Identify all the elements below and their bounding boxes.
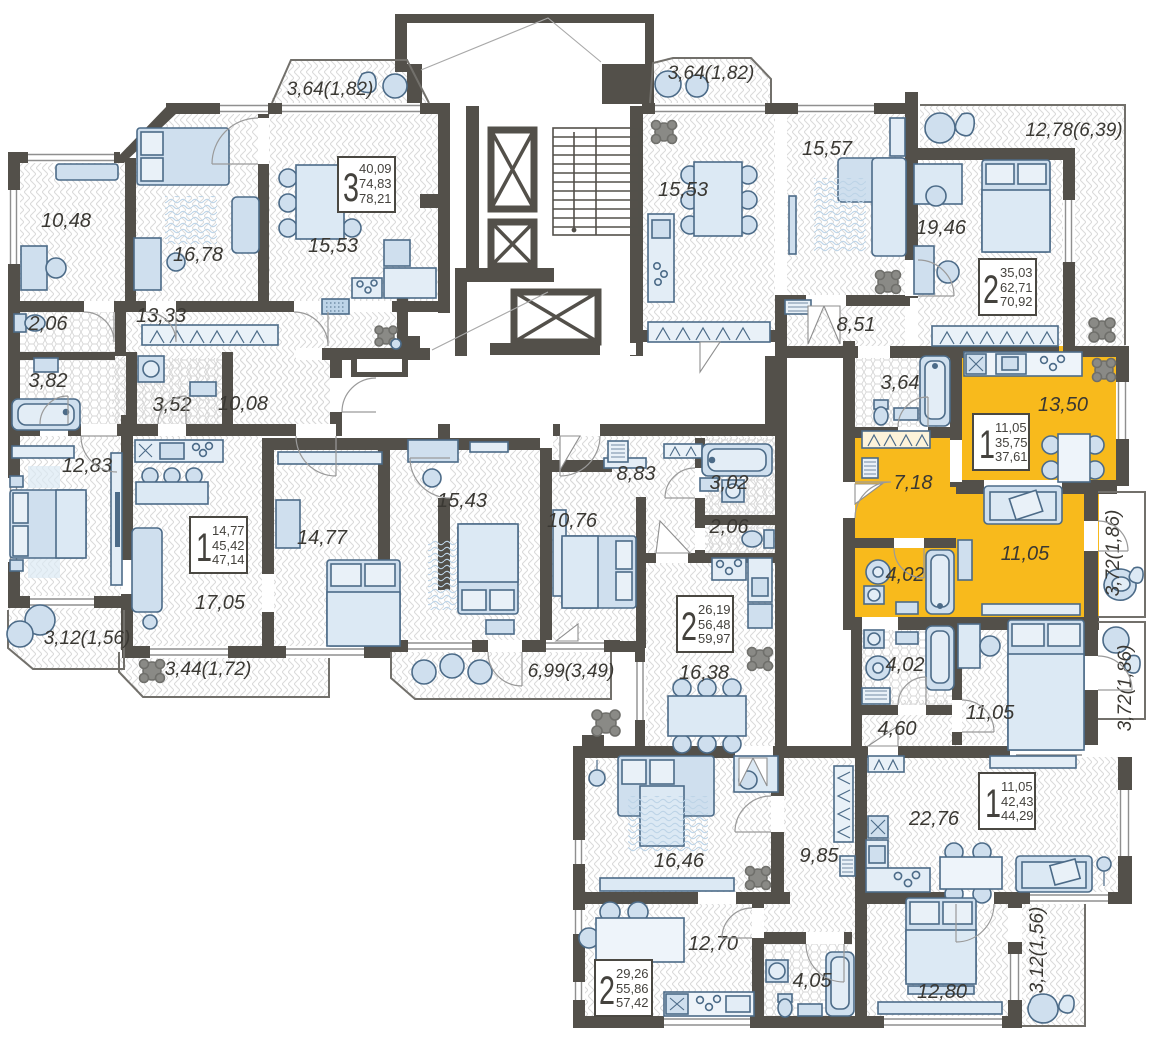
svg-text:15,53: 15,53 [658, 179, 708, 201]
svg-text:12,70: 12,70 [688, 933, 738, 955]
svg-text:11,05: 11,05 [1001, 543, 1050, 565]
svg-text:3,72(1,86): 3,72(1,86) [1103, 510, 1124, 597]
svg-text:11,05: 11,05 [995, 420, 1027, 435]
svg-text:11,05: 11,05 [1001, 779, 1033, 794]
svg-text:9,85: 9,85 [800, 845, 840, 867]
svg-text:7,18: 7,18 [894, 472, 933, 494]
svg-text:74,83: 74,83 [359, 176, 392, 191]
svg-text:15,43: 15,43 [437, 490, 487, 512]
svg-text:10,76: 10,76 [547, 510, 598, 532]
svg-text:4,02: 4,02 [886, 654, 925, 676]
svg-text:12,83: 12,83 [62, 455, 112, 477]
svg-text:2: 2 [681, 605, 697, 649]
svg-text:35,03: 35,03 [1000, 265, 1033, 280]
svg-text:3,82: 3,82 [29, 370, 68, 392]
svg-text:3,64: 3,64 [881, 372, 920, 394]
svg-text:2: 2 [983, 268, 999, 312]
svg-text:42,43: 42,43 [1001, 794, 1034, 809]
svg-text:37,61: 37,61 [995, 449, 1028, 464]
svg-text:8,51: 8,51 [837, 314, 876, 336]
svg-text:78,21: 78,21 [359, 191, 392, 206]
svg-text:3,72(1,86): 3,72(1,86) [1115, 645, 1136, 732]
svg-text:22,76: 22,76 [908, 808, 960, 830]
svg-text:10,08: 10,08 [218, 393, 268, 415]
svg-text:12,80: 12,80 [917, 981, 967, 1003]
svg-text:6,99(3,49): 6,99(3,49) [528, 661, 615, 682]
svg-text:4,05: 4,05 [793, 970, 833, 992]
svg-text:1: 1 [196, 526, 212, 570]
svg-text:59,97: 59,97 [698, 631, 731, 646]
svg-text:13,50: 13,50 [1038, 394, 1088, 416]
svg-text:3,64(1,82): 3,64(1,82) [287, 79, 374, 100]
svg-text:3,12(1,56): 3,12(1,56) [1027, 907, 1048, 994]
svg-text:10,48: 10,48 [41, 210, 91, 232]
svg-text:55,86: 55,86 [616, 981, 649, 996]
svg-text:57,42: 57,42 [616, 995, 649, 1010]
svg-text:11,05: 11,05 [966, 702, 1015, 724]
svg-text:14,77: 14,77 [212, 523, 245, 538]
svg-text:29,26: 29,26 [616, 966, 649, 981]
svg-text:56,48: 56,48 [698, 617, 731, 632]
svg-text:12,78(6,39): 12,78(6,39) [1025, 120, 1122, 141]
svg-text:40,09: 40,09 [359, 161, 392, 176]
svg-text:44,29: 44,29 [1001, 808, 1034, 823]
svg-text:3,44(1,72): 3,44(1,72) [165, 659, 252, 680]
svg-text:62,71: 62,71 [1000, 280, 1033, 295]
svg-text:16,46: 16,46 [654, 850, 705, 872]
svg-text:3: 3 [343, 166, 359, 210]
svg-text:35,75: 35,75 [995, 435, 1028, 450]
svg-text:4,60: 4,60 [878, 718, 917, 740]
svg-text:4,02: 4,02 [886, 564, 925, 586]
svg-text:8,83: 8,83 [617, 463, 656, 485]
svg-text:47,14: 47,14 [212, 552, 245, 567]
svg-text:3,64(1,82): 3,64(1,82) [668, 63, 755, 84]
svg-text:70,92: 70,92 [1000, 294, 1033, 309]
svg-text:16,38: 16,38 [679, 662, 729, 684]
svg-text:2,06: 2,06 [28, 313, 69, 335]
svg-text:15,53: 15,53 [308, 235, 358, 257]
svg-text:2,06: 2,06 [709, 516, 750, 538]
svg-text:14,77: 14,77 [297, 527, 348, 549]
svg-text:16,78: 16,78 [173, 244, 223, 266]
svg-text:45,42: 45,42 [212, 538, 245, 553]
svg-text:3,02: 3,02 [710, 472, 749, 494]
svg-text:3,12(1,56): 3,12(1,56) [44, 628, 131, 649]
svg-text:1: 1 [979, 423, 995, 467]
svg-text:15,57: 15,57 [802, 138, 853, 160]
svg-text:17,05: 17,05 [195, 592, 246, 614]
svg-text:26,19: 26,19 [698, 602, 731, 617]
svg-text:2: 2 [599, 969, 615, 1013]
svg-text:19,46: 19,46 [916, 217, 967, 239]
svg-text:1: 1 [985, 782, 1001, 826]
